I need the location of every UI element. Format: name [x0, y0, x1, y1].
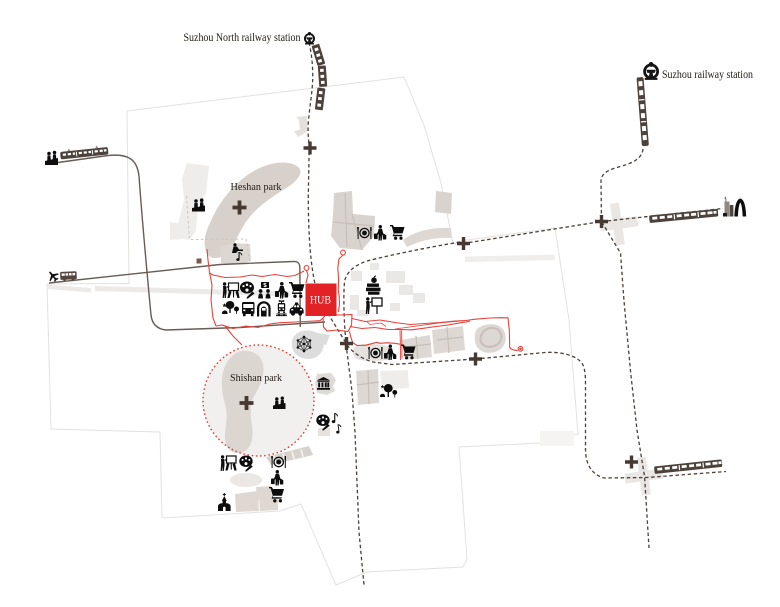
svg-text:HUB: HUB [310, 295, 331, 307]
svg-text:Shishan park: Shishan park [230, 372, 282, 384]
svg-text:Suzhou railway station: Suzhou railway station [662, 69, 753, 81]
svg-text:Suzhou North railway station: Suzhou North railway station [184, 32, 301, 44]
svg-text:Heshan park: Heshan park [231, 181, 282, 193]
